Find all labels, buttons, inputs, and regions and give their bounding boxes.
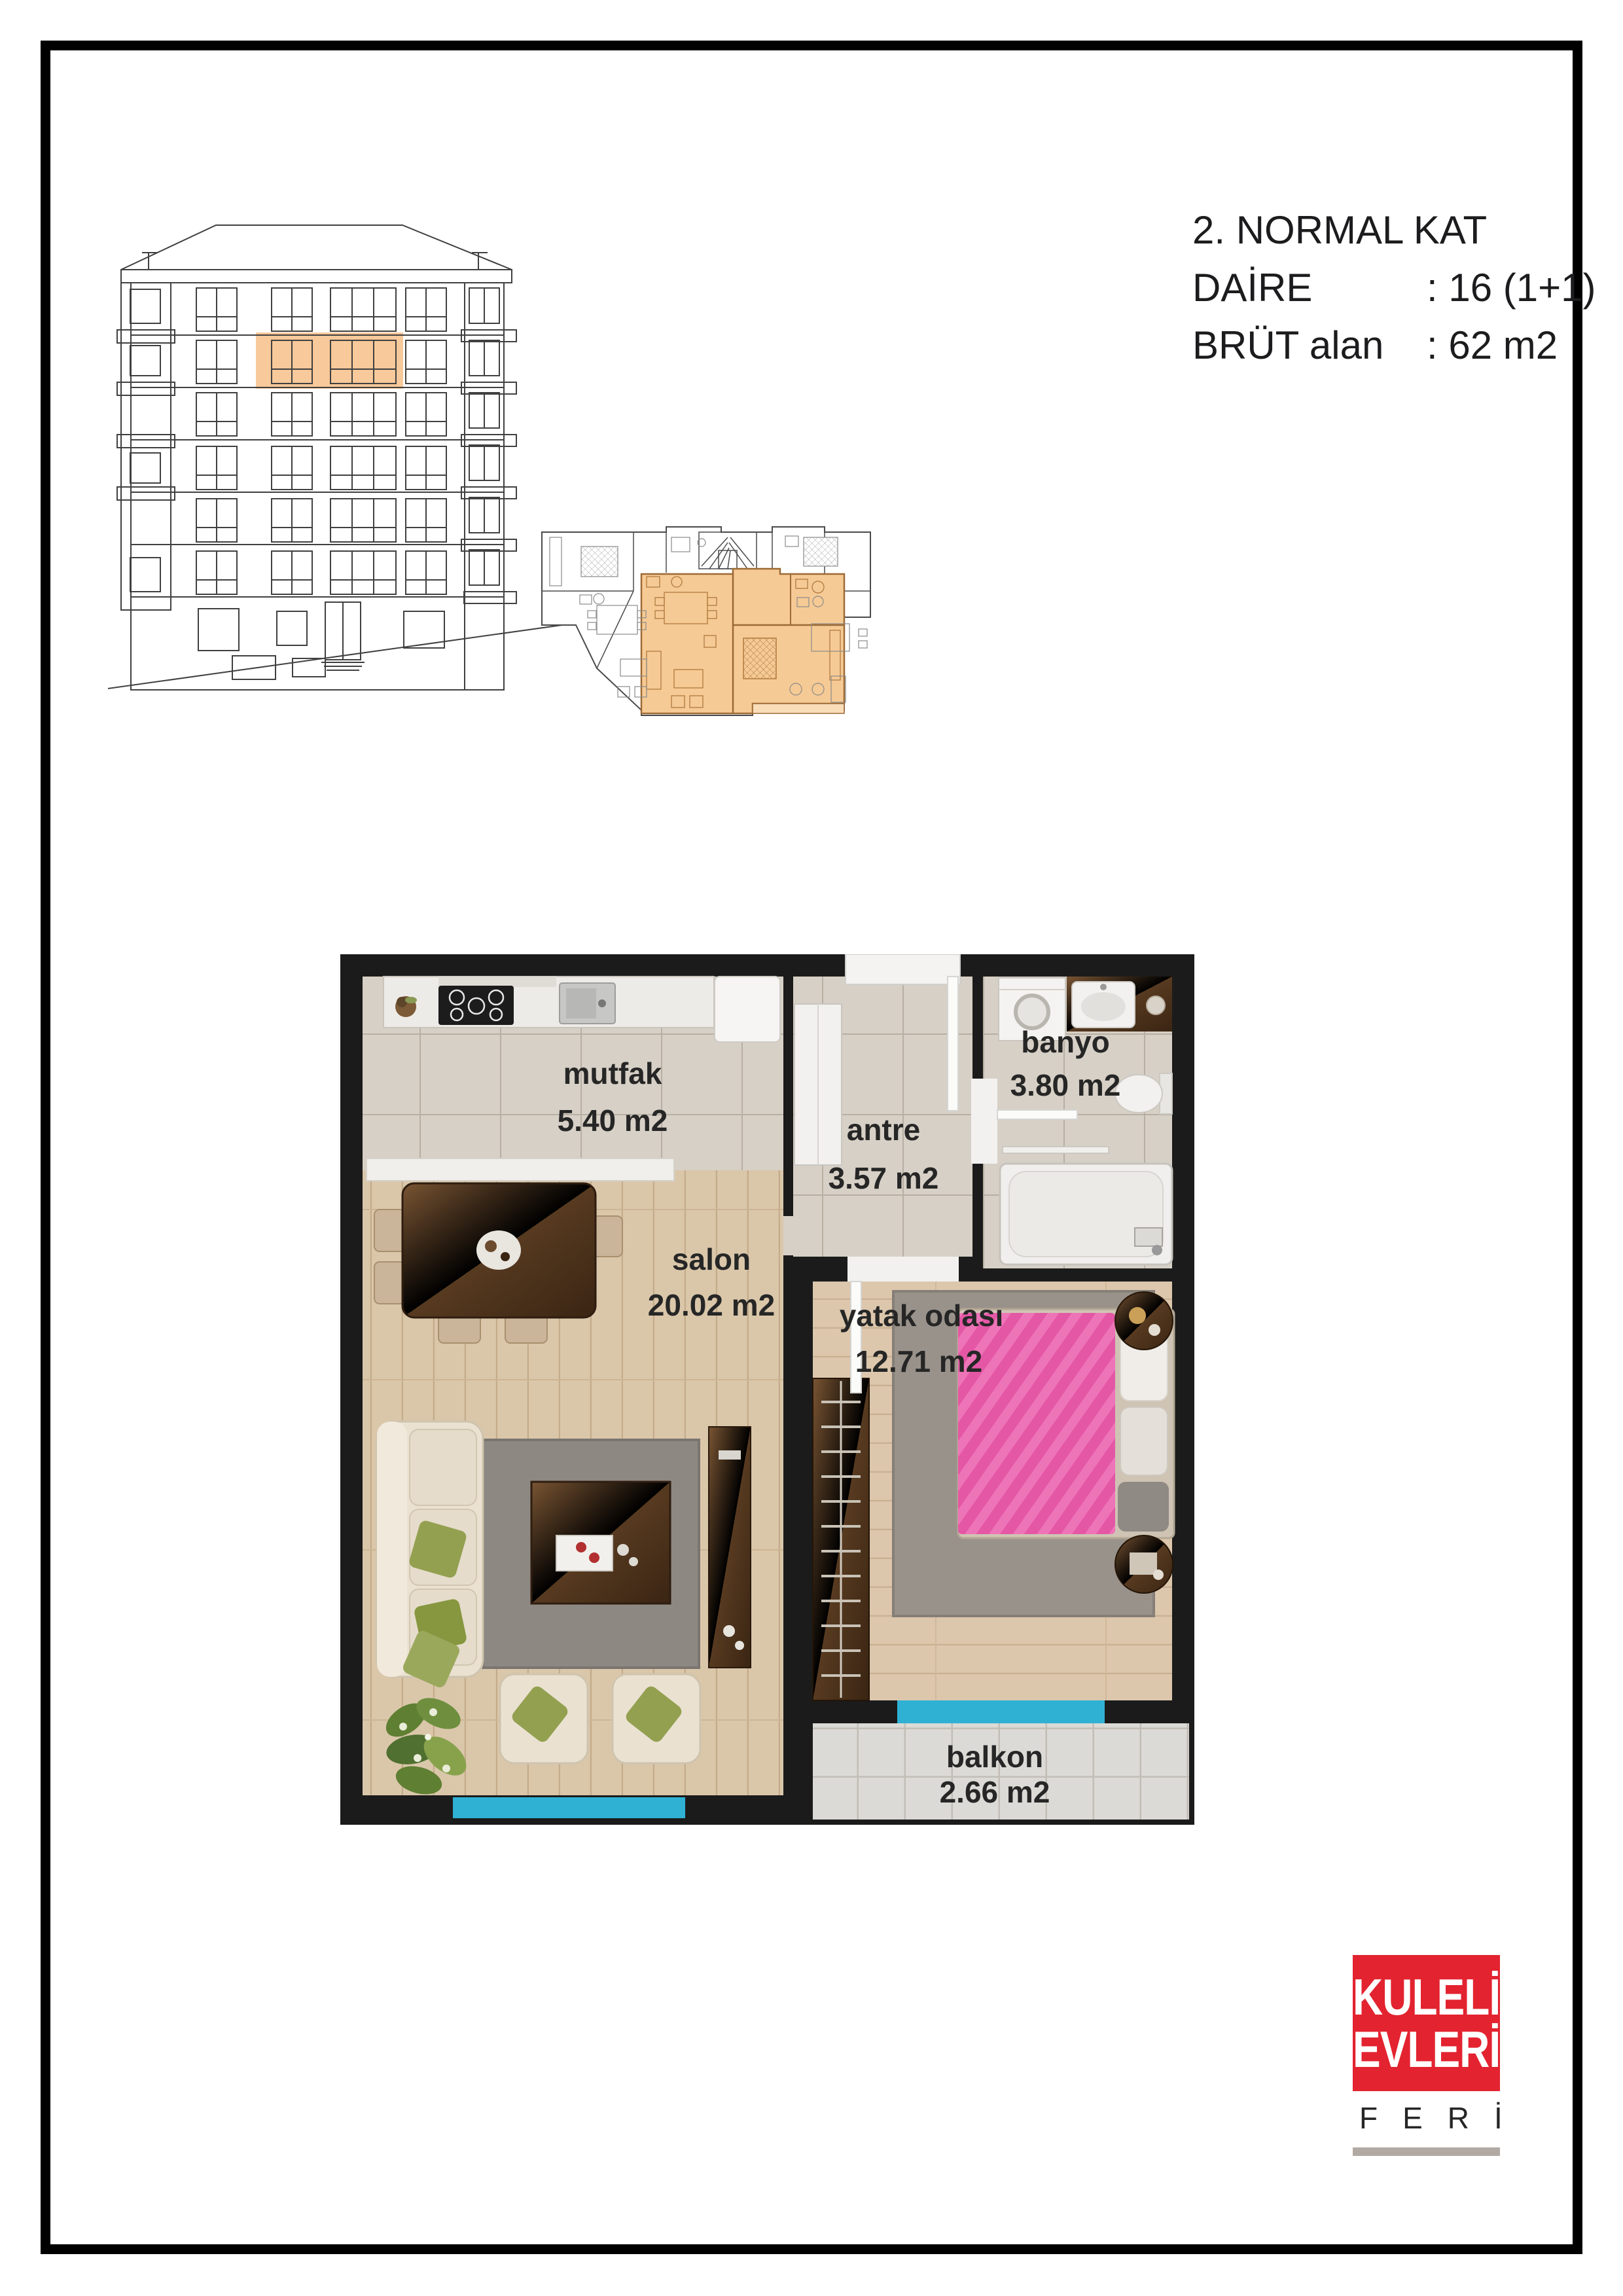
kitchen-shelf (366, 1158, 674, 1181)
towel-bar (1003, 1147, 1109, 1153)
bathroom-door-leaf (997, 1110, 1077, 1119)
label-banyo-area: 3.80 m2 (1010, 1068, 1121, 1102)
bathroom-door (971, 1079, 997, 1164)
bathroom-sink (1067, 977, 1172, 1031)
daire-row: DAİRE : 16 (1+1) (1192, 259, 1596, 317)
label-mutfak-area: 5.40 m2 (558, 1103, 668, 1138)
label-antre: antre (847, 1113, 920, 1147)
nightstand (1115, 1292, 1173, 1350)
entrance-door (846, 954, 960, 984)
logo-red-square: KULELİ EVLERİ (1353, 1955, 1500, 2091)
entrance-door-leaf (948, 977, 958, 1111)
brand-logo: KULELİ EVLERİ FERİ (1353, 1955, 1500, 2156)
armchair (613, 1674, 700, 1763)
brochure-page: 2. NORMAL KAT DAİRE : 16 (1+1) BRÜT alan… (0, 0, 1623, 2296)
brut-value: : 62 m2 (1427, 317, 1558, 374)
pillow (1120, 1407, 1168, 1475)
toilet (1115, 1073, 1172, 1114)
nightstand (1115, 1535, 1173, 1593)
unit-info-block: 2. NORMAL KAT DAİRE : 16 (1+1) BRÜT alan… (1192, 202, 1596, 374)
apartment-floor-plan: mutfak 5.40 m2 antre 3.57 m2 banyo 3.80 … (340, 954, 1194, 1825)
label-balkon-area: 2.66 m2 (940, 1775, 1050, 1809)
label-yatak: yatak odası (840, 1299, 1004, 1333)
stove (438, 986, 514, 1025)
armchair (500, 1674, 588, 1763)
fridge (715, 977, 780, 1042)
label-mutfak: mutfak (563, 1056, 662, 1090)
label-salon: salon (672, 1242, 751, 1276)
wardrobe (813, 1378, 869, 1700)
label-salon-area: 20.02 m2 (648, 1288, 775, 1322)
bedroom-door (847, 1257, 959, 1282)
left-balcony-column (117, 283, 175, 610)
floor-key-plan (537, 514, 877, 723)
bathtub (1000, 1164, 1172, 1265)
throw-cushion (1118, 1482, 1169, 1532)
label-antre-area: 3.57 m2 (829, 1161, 939, 1195)
roof (121, 225, 512, 283)
salon-window (453, 1797, 685, 1818)
label-balkon: balkon (946, 1740, 1043, 1774)
ground-floor (198, 602, 444, 679)
sofa (377, 1422, 483, 1689)
brut-label: BRÜT alan (1192, 317, 1427, 374)
label-banyo: banyo (1021, 1025, 1109, 1059)
label-yatak-area: 12.71 m2 (855, 1344, 982, 1378)
brut-row: BRÜT alan : 62 m2 (1192, 317, 1596, 374)
logo-subtitle: FERİ (1353, 2100, 1500, 2136)
daire-label: DAİRE (1192, 259, 1427, 317)
balcony-door-window (897, 1700, 1105, 1723)
logo-gray-bar (1353, 2147, 1500, 2156)
salon-furniture (377, 1422, 751, 1799)
highlighted-unit (641, 569, 844, 713)
logo-line2: EVLERİ (1353, 2017, 1500, 2081)
daire-value: : 16 (1+1) (1427, 259, 1596, 317)
floor-title: 2. NORMAL KAT (1192, 202, 1596, 259)
